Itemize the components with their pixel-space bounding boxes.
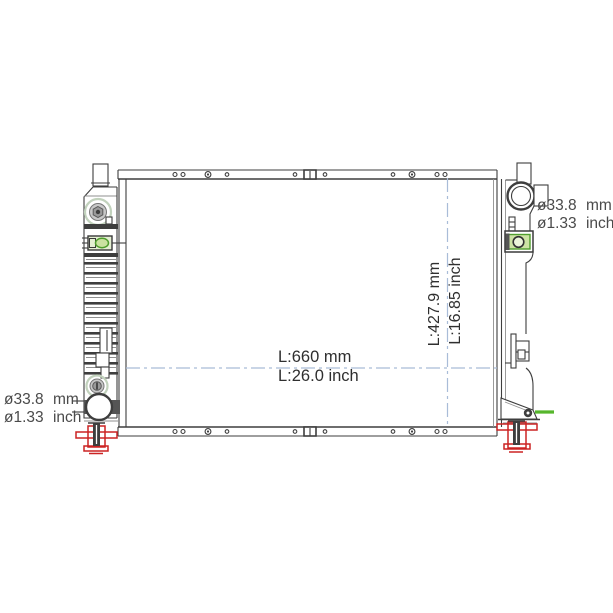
height-dimension-mm-label: L:427.9 mm xyxy=(426,262,443,346)
right-filler-neck xyxy=(517,163,531,184)
inlet-port-mm-label: ø33.8 mm xyxy=(537,197,612,214)
radiator-drawing: L:660 mm L:26.0 inch L:427.9 mm L:16.85 … xyxy=(0,0,613,613)
height-dimension: L:427.9 mm L:16.85 inch xyxy=(426,178,464,424)
width-dimension-inch-label: L:26.0 inch xyxy=(278,367,359,385)
right-fitting-highlight xyxy=(505,231,533,252)
inlet-port-label: ø33.8 mm ø1.33 inch xyxy=(537,197,613,232)
width-dimension-mm-label: L:660 mm xyxy=(278,348,351,366)
left-mount-pin-highlight xyxy=(76,423,117,454)
inlet-port-inch-label: ø1.33 inch xyxy=(537,215,613,232)
left-filler-neck xyxy=(91,164,110,186)
width-dimension: L:660 mm L:26.0 inch xyxy=(126,348,497,385)
left-mid-bracket xyxy=(96,328,112,378)
outlet-port-label: ø33.8 mm ø1.33 inch xyxy=(4,391,81,426)
right-mount-pin-highlight xyxy=(497,421,537,452)
right-mid-bracket xyxy=(505,334,529,368)
outlet-port-inch-label: ø1.33 inch xyxy=(4,409,81,426)
top-center-bracket xyxy=(304,170,316,179)
height-dimension-inch-label: L:16.85 inch xyxy=(447,257,464,344)
radiator-technical-diagram: L:660 mm L:26.0 inch L:427.9 mm L:16.85 … xyxy=(0,0,613,613)
bottom-center-bracket xyxy=(304,427,316,436)
outlet-port-mm-label: ø33.8 mm xyxy=(4,391,79,408)
right-bottom-bracket xyxy=(501,398,554,419)
